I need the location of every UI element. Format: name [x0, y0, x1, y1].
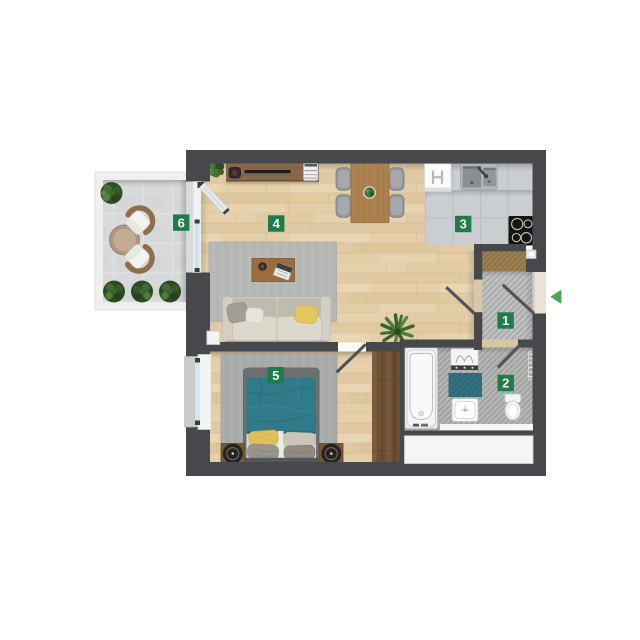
svg-text:2: 2: [502, 376, 509, 391]
svg-text:4: 4: [273, 216, 281, 231]
svg-text:5: 5: [272, 368, 279, 383]
svg-text:1: 1: [502, 313, 509, 328]
svg-text:6: 6: [178, 215, 185, 230]
svg-text:3: 3: [460, 217, 467, 232]
